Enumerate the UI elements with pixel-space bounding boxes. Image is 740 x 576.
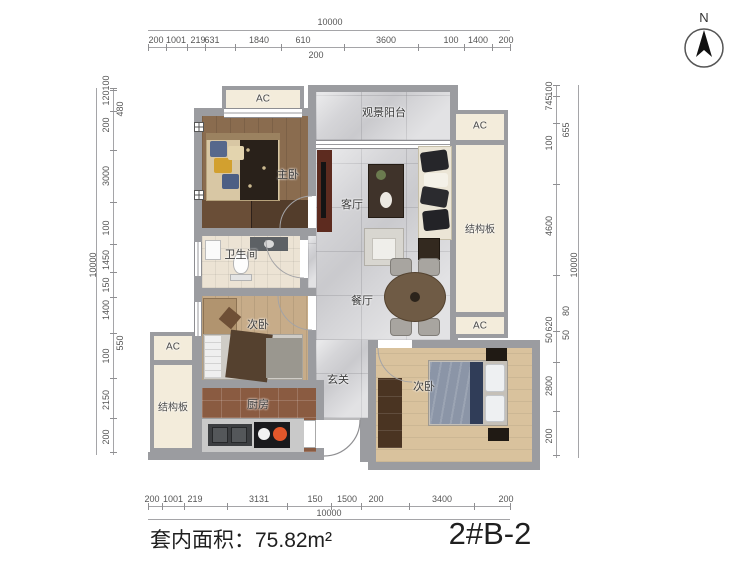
dimension-tick [510,503,511,510]
dimension-tick [110,418,117,419]
dimension-tick [464,44,465,51]
bed-headboard [206,133,280,140]
wall [316,380,324,420]
stove-burner-white [258,428,270,440]
dimension-value: 620 [544,316,554,331]
sofa-cushion-dark [422,209,450,232]
dimension-value: 2800 [544,376,554,396]
sink-basin [231,427,247,443]
label-balcony: 观景阳台 [362,104,406,120]
door-opening-bedroom-left [308,296,316,330]
dimension-line [148,30,510,31]
dimension-tick [474,503,475,510]
dimension-tick [166,44,167,51]
label-second-bedroom-left: 次卧 [247,316,269,332]
table-decor [380,192,392,208]
nightstand [486,348,507,361]
dimension-value: 1400 [468,35,488,45]
north-arrow: N [680,10,728,72]
wall [360,418,368,462]
window-master-bay [224,108,302,118]
coffee-table [368,164,404,218]
dimension-tick [110,272,117,273]
dimension-value: 200 [101,117,111,132]
dimension-tick [492,44,493,51]
dimension-value: 200 [498,35,513,45]
dimension-tick [110,90,117,91]
wall [308,85,316,196]
wall [148,452,324,460]
dimension-line [556,85,557,458]
dimension-tick [110,88,117,89]
dimension-tick [235,44,236,51]
dimension-tick [162,503,163,510]
hallway-floor [308,236,316,288]
dimension-overall: 10000 [88,252,98,277]
dimension-value-inner: 50 [561,330,571,340]
nightstand [488,428,509,441]
washbasin [264,240,274,248]
dimension-tick [553,275,560,276]
washer [205,240,221,260]
dimension-value: 100 [544,135,554,150]
wall [368,462,540,470]
dimension-value: 200 [368,494,383,504]
dimension-tick [110,378,117,379]
dimension-value: 120 [101,90,111,105]
door-opening-master [308,196,316,228]
interior-area-label: 套内面积：75.82m² [150,524,332,554]
label-ac-right-bottom: AC [473,321,487,332]
dimension-tick [205,44,206,51]
wall [368,340,376,462]
dimension-value: 610 [295,35,310,45]
dimension-value: 100 [443,35,458,45]
divider [452,140,508,145]
wall [300,278,308,296]
dimension-tick [418,44,419,51]
dimension-value: 200 [544,428,554,443]
sink-basin [212,427,228,443]
pillow-cream [228,146,244,160]
dimension-tick [344,44,345,51]
pillow-blue [210,141,227,157]
label-ac-top-left: AC [256,94,270,105]
wall-switch-box [194,190,204,200]
unit-number-label: 2#B-2 [430,516,550,552]
dimension-value-inner: 80 [561,306,571,316]
pillow-white [485,364,505,392]
entry-door-niche [324,418,360,460]
dimension-value: 219 [190,35,205,45]
window-bathroom [194,242,202,276]
dimension-value: 1001 [166,35,186,45]
dimension-value: 219 [187,494,202,504]
dimension-tick [553,96,560,97]
dimension-tick [361,503,362,510]
dimension-value: 150 [101,277,111,292]
dimension-tick [110,244,117,245]
wall [308,288,316,296]
dimension-tick [227,503,228,510]
dimension-tick [110,297,117,298]
bed-pillows [205,336,221,378]
dimension-value: 200 [101,429,111,444]
wardrobe-master-section [202,200,252,228]
dimension-value: 50 [544,333,554,343]
dimension-value: 1450 [101,250,111,270]
wall [412,340,540,348]
wall [194,380,316,388]
sofa-cushion-dark [420,149,450,173]
dimension-tick [110,150,117,151]
pillow-white [485,395,505,422]
label-bathroom: 卫生间 [225,246,258,262]
dimension-value: 100 [101,348,111,363]
divider [150,360,196,365]
door-opening-bedroom-right [378,340,412,348]
bed-runner-dark [240,140,278,200]
wall [308,85,458,92]
dimension-value: 631 [204,35,219,45]
dimension-tick [184,503,185,510]
dimension-value-inner: 655 [561,122,571,137]
dimension-overall: 10000 [316,508,341,518]
dimension-value: 200 [148,35,163,45]
label-dining-room: 餐厅 [351,292,373,308]
bed-blanket-navy [470,362,483,424]
dimension-tick [510,44,511,51]
dimension-value: 745 [544,95,554,110]
pillow-yellow [214,158,232,173]
dimension-tick [110,333,117,334]
dimension-tick [553,331,560,332]
bed-sheet-gray [266,338,302,378]
label-master-bedroom: 主卧 [277,166,299,182]
side-table [418,238,440,260]
table-plant [376,170,386,180]
wall [300,228,308,240]
dimension-value: 3600 [376,35,396,45]
label-structural-panel-left: 结构板 [158,399,188,414]
wardrobe-right [378,378,402,448]
dimension-value: 3131 [249,494,269,504]
label-second-bedroom-right: 次卧 [413,378,435,394]
dimension-tick [553,411,560,412]
dimension-tick [553,123,560,124]
window-bedroom-left [194,302,202,336]
dimension-value: 100 [544,81,554,96]
dimension-value: 1400 [101,300,111,320]
label-ac-right-top: AC [473,121,487,132]
stove-burner-orange [273,427,287,441]
dimension-tick [553,85,560,86]
dimension-value: 200 [308,50,323,60]
armchair-seat [372,238,396,260]
sofa-cushion-light [424,173,448,187]
divider [452,312,508,317]
dimension-value: 200 [144,494,159,504]
label-entry-hall: 玄关 [327,371,349,387]
dimension-tick [281,44,282,51]
dimension-value: 2150 [101,390,111,410]
dimension-line [148,47,510,48]
dimension-tick [553,362,560,363]
dimension-tick [148,44,149,51]
dimension-tick [287,503,288,510]
wall-switch-box [194,122,204,132]
dimension-line [148,506,510,507]
label-structural-panel-right: 结构板 [465,221,495,236]
label-ac-left: AC [166,342,180,353]
north-label: N [680,10,728,25]
dimension-value: 150 [307,494,322,504]
dimension-value: 4600 [544,216,554,236]
dimension-tick [409,503,410,510]
pillow-blue [222,174,239,189]
dimension-overall: 10000 [569,252,579,277]
dimension-value: 1001 [163,494,183,504]
label-kitchen: 厨房 [247,396,269,412]
dining-centerpiece [410,292,420,302]
dimension-tick [553,455,560,456]
dimension-tick [148,503,149,510]
kitchen-door-panel [302,420,316,448]
door-opening-bathroom [300,240,308,278]
dimension-overall: 10000 [317,17,342,27]
dimension-tick [110,202,117,203]
dimension-value-inner: 480 [115,101,125,116]
wall [532,348,540,470]
label-living-room: 客厅 [341,196,363,212]
dimension-value: 1840 [249,35,269,45]
dimension-value: 3400 [432,494,452,504]
wall [194,288,316,296]
floorplan-sheet: 2001001219631184061036001001400200100002… [0,0,740,576]
dimension-tick [110,452,117,453]
dimension-value: 100 [101,75,111,90]
dimension-value: 3000 [101,166,111,186]
dimension-value-inner: 550 [115,335,125,350]
dimension-value: 200 [498,494,513,504]
dimension-value: 100 [101,220,111,235]
tv [321,162,326,218]
wall [194,228,316,236]
dimension-tick [187,44,188,51]
dimension-value: 1500 [337,494,357,504]
dimension-tick [553,184,560,185]
toilet-tank [230,274,252,281]
